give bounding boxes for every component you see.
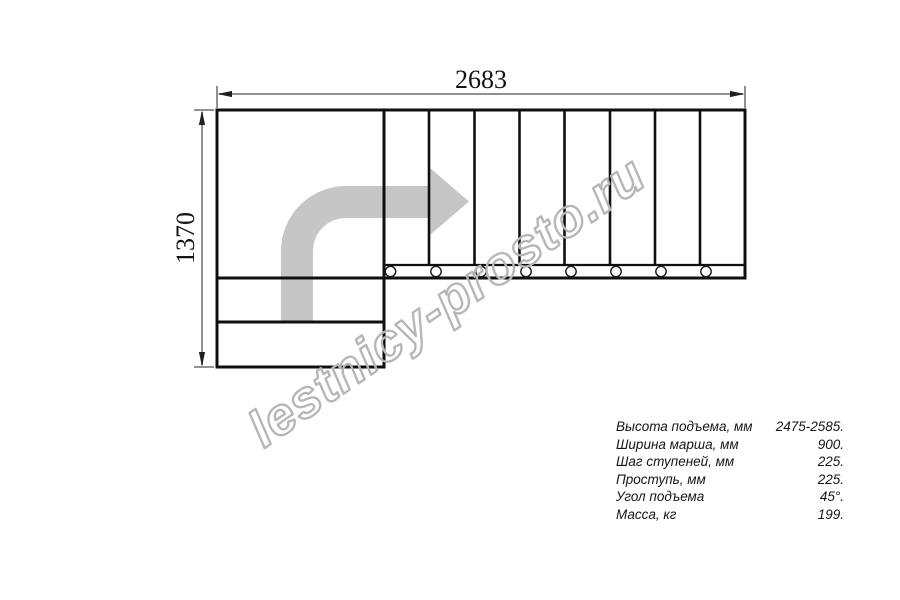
- spec-label: Шаг ступеней, мм: [616, 453, 734, 471]
- spec-label: Высота подъема, мм: [616, 418, 752, 436]
- spec-label: Ширина марша, мм: [616, 436, 739, 454]
- fastener-circle-8: [701, 266, 711, 276]
- fastener-circle-1: [385, 266, 395, 276]
- dim-arrow-down-icon: [199, 352, 205, 367]
- spec-row-rise-angle: Угол подъема 45°.: [616, 488, 844, 506]
- spec-value: 45°.: [820, 488, 844, 506]
- spec-value: 225.: [818, 471, 844, 489]
- dimension-arrowheads: [199, 91, 745, 367]
- spec-row-flight-width: Ширина марша, мм 900.: [616, 436, 844, 454]
- spec-value: 225.: [818, 453, 844, 471]
- spec-row-tread-depth: Проступь, мм 225.: [616, 471, 844, 489]
- width-dimension-label: 2683: [455, 65, 507, 94]
- fastener-circle-6: [611, 266, 621, 276]
- spec-value: 199.: [818, 506, 844, 524]
- dimension-lines: [194, 86, 745, 367]
- diagram-page: 2683 1370 lestnicy-prosto.ru Высота подъ…: [0, 0, 900, 600]
- spec-label: Масса, кг: [616, 506, 676, 524]
- dim-arrow-up-icon: [199, 111, 205, 126]
- fastener-circle-5: [566, 266, 576, 276]
- spec-row-mass: Масса, кг 199.: [616, 506, 844, 524]
- spec-label: Угол подъема: [616, 488, 704, 506]
- spec-value: 900.: [818, 436, 844, 454]
- dim-arrow-right-icon: [730, 91, 745, 97]
- spec-row-height: Высота подъема, мм 2475-2585.: [616, 418, 844, 436]
- dim-arrow-left-icon: [218, 91, 233, 97]
- fastener-circle-7: [656, 266, 666, 276]
- spec-label: Проступь, мм: [616, 471, 706, 489]
- specifications-table: Высота подъема, мм 2475-2585. Ширина мар…: [616, 418, 844, 523]
- spec-value: 2475-2585.: [776, 418, 844, 436]
- height-dimension-label: 1370: [171, 212, 200, 264]
- spec-row-step-pitch: Шаг ступеней, мм 225.: [616, 453, 844, 471]
